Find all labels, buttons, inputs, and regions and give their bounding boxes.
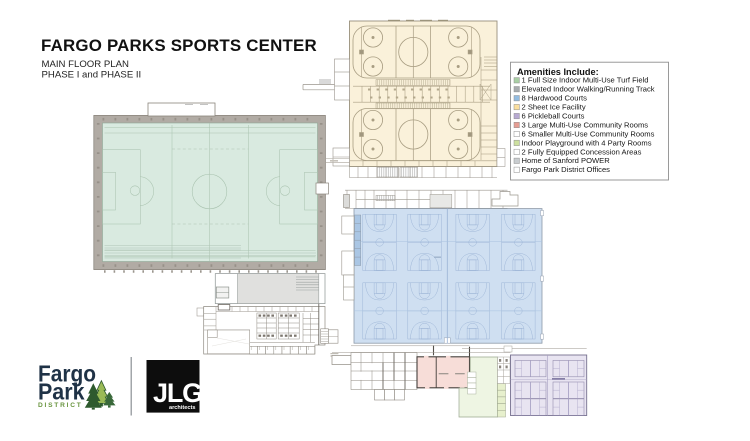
svg-text:6 Smaller Multi-Use Community: 6 Smaller Multi-Use Community Rooms: [522, 129, 655, 138]
svg-text:3 Large Multi-Use Community Ro: 3 Large Multi-Use Community Rooms: [522, 120, 649, 129]
svg-text:2 Fully Equipped Concession Ar: 2 Fully Equipped Concession Areas: [522, 147, 642, 156]
svg-text:PHASE I and PHASE II: PHASE I and PHASE II: [42, 70, 142, 81]
svg-text:8 Hardwood Courts: 8 Hardwood Courts: [522, 94, 588, 103]
svg-text:Elevated Indoor Walking/Runnin: Elevated Indoor Walking/Running Track: [522, 85, 655, 94]
svg-text:JLG: JLG: [153, 378, 202, 408]
svg-text:Indoor Playground with 4 Party: Indoor Playground with 4 Party Rooms: [522, 138, 652, 147]
svg-text:2 Sheet Ice Facility: 2 Sheet Ice Facility: [522, 103, 586, 112]
svg-text:6 Pickleball Courts: 6 Pickleball Courts: [522, 112, 585, 121]
svg-text:MAIN FLOOR PLAN: MAIN FLOOR PLAN: [42, 59, 129, 70]
svg-text:Park: Park: [38, 379, 85, 405]
svg-text:1 Full Size Indoor Multi-Use T: 1 Full Size Indoor Multi-Use Turf Field: [522, 76, 649, 85]
svg-text:Fargo Park District Offices: Fargo Park District Offices: [522, 165, 611, 174]
svg-text:FARGO PARKS SPORTS CENTER: FARGO PARKS SPORTS CENTER: [41, 36, 317, 55]
svg-text:DISTRICT: DISTRICT: [38, 402, 83, 409]
svg-text:architects: architects: [169, 405, 195, 411]
svg-text:Home of Sanford POWER: Home of Sanford POWER: [522, 156, 611, 165]
